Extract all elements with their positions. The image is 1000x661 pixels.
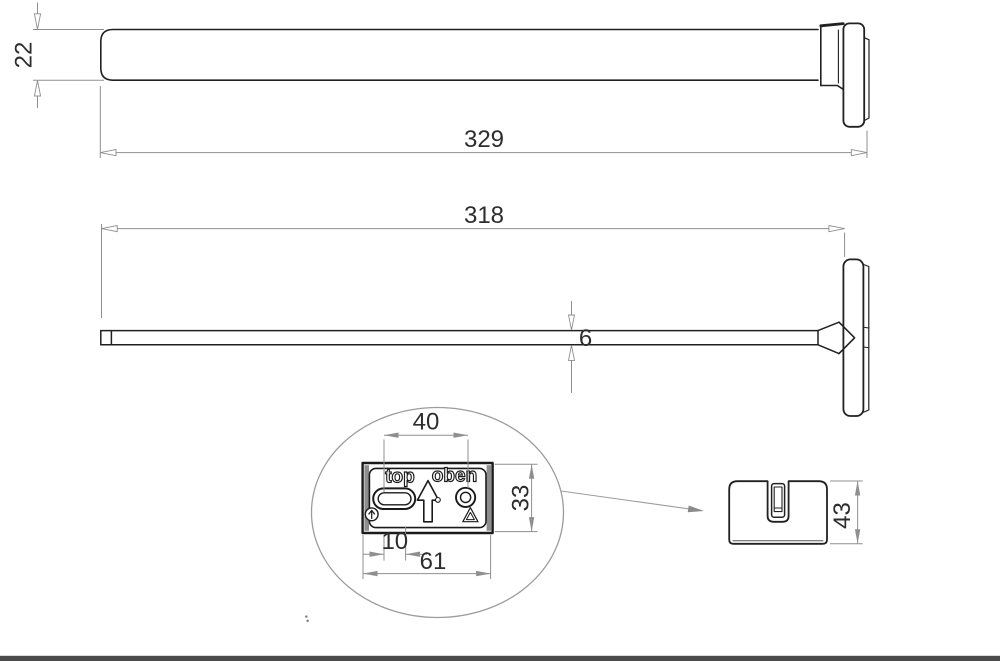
arrowhead xyxy=(363,571,378,576)
arrowhead xyxy=(34,81,40,97)
dim-label-plate-height: 33 xyxy=(508,485,535,512)
dim-label-bar-thickness: 6 xyxy=(579,325,592,352)
arrowhead xyxy=(100,150,116,156)
arrowhead xyxy=(476,571,491,576)
technical-drawing: 22 329 xyxy=(0,0,1000,661)
arrowhead xyxy=(34,14,40,29)
neck-top-taper xyxy=(818,322,839,330)
round-hole-outer xyxy=(456,488,475,507)
t-end-back-plate xyxy=(864,265,869,413)
dim-bar-length xyxy=(102,224,845,318)
side-view: 318 6 xyxy=(101,202,869,416)
dim-bar-height xyxy=(33,3,104,109)
detail-leader-line xyxy=(561,491,701,511)
detail-leader-arrowhead xyxy=(688,506,704,513)
dim-label-cap-height: 43 xyxy=(829,502,856,529)
detail-view: top oben 40 33 10 xyxy=(305,408,704,623)
cap-inner-top-edge xyxy=(821,24,843,26)
dim-label-overall-length: 329 xyxy=(464,126,504,153)
dim-label-bar-length: 318 xyxy=(464,202,504,229)
arrowhead xyxy=(855,481,860,496)
speck-mark xyxy=(305,615,307,617)
mold-dot-icon xyxy=(436,498,441,503)
technical-drawing-page: 22 329 xyxy=(0,0,1000,661)
arrowhead xyxy=(454,433,469,438)
arrowhead xyxy=(569,315,575,330)
plate-left-bevel xyxy=(364,465,369,531)
arrowhead xyxy=(529,464,534,479)
push-bar-side-outline xyxy=(101,259,869,416)
plate-label-top: top xyxy=(385,467,415,488)
dim-label-bar-height: 22 xyxy=(11,42,38,69)
arrowhead xyxy=(569,345,575,360)
clip-outer xyxy=(772,484,785,518)
dim-label-slot-offset: 10 xyxy=(381,528,408,555)
end-cap-view: 43 xyxy=(729,481,862,544)
arrowhead xyxy=(851,150,867,156)
push-bar-top-outline xyxy=(101,23,869,126)
arrowhead xyxy=(829,226,845,232)
speck-mark xyxy=(306,620,308,622)
cap-inner-bottom-edge xyxy=(821,86,843,90)
dim-label-hole-spacing: 40 xyxy=(413,409,440,436)
plate-label-oben: oben xyxy=(432,466,477,487)
dim-label-plate-width: 61 xyxy=(420,548,447,575)
end-cap-body xyxy=(843,23,864,126)
end-cap-front-outline xyxy=(729,481,827,544)
neck-chevron xyxy=(839,322,855,353)
bar-body xyxy=(101,30,818,81)
arrowhead xyxy=(102,226,118,232)
arrowhead xyxy=(855,529,860,544)
plate-tick-upper xyxy=(864,327,869,328)
top-view: 22 329 xyxy=(11,3,870,159)
footer-bar xyxy=(0,656,1000,661)
dim-bar-thickness xyxy=(569,301,575,393)
neck-bottom-taper xyxy=(818,345,839,354)
plate-right-bevel xyxy=(487,465,492,531)
arrowhead xyxy=(384,433,399,438)
plate-tick-lower xyxy=(864,347,869,348)
arrowhead xyxy=(529,517,534,532)
plate-slot-inner xyxy=(378,493,411,505)
